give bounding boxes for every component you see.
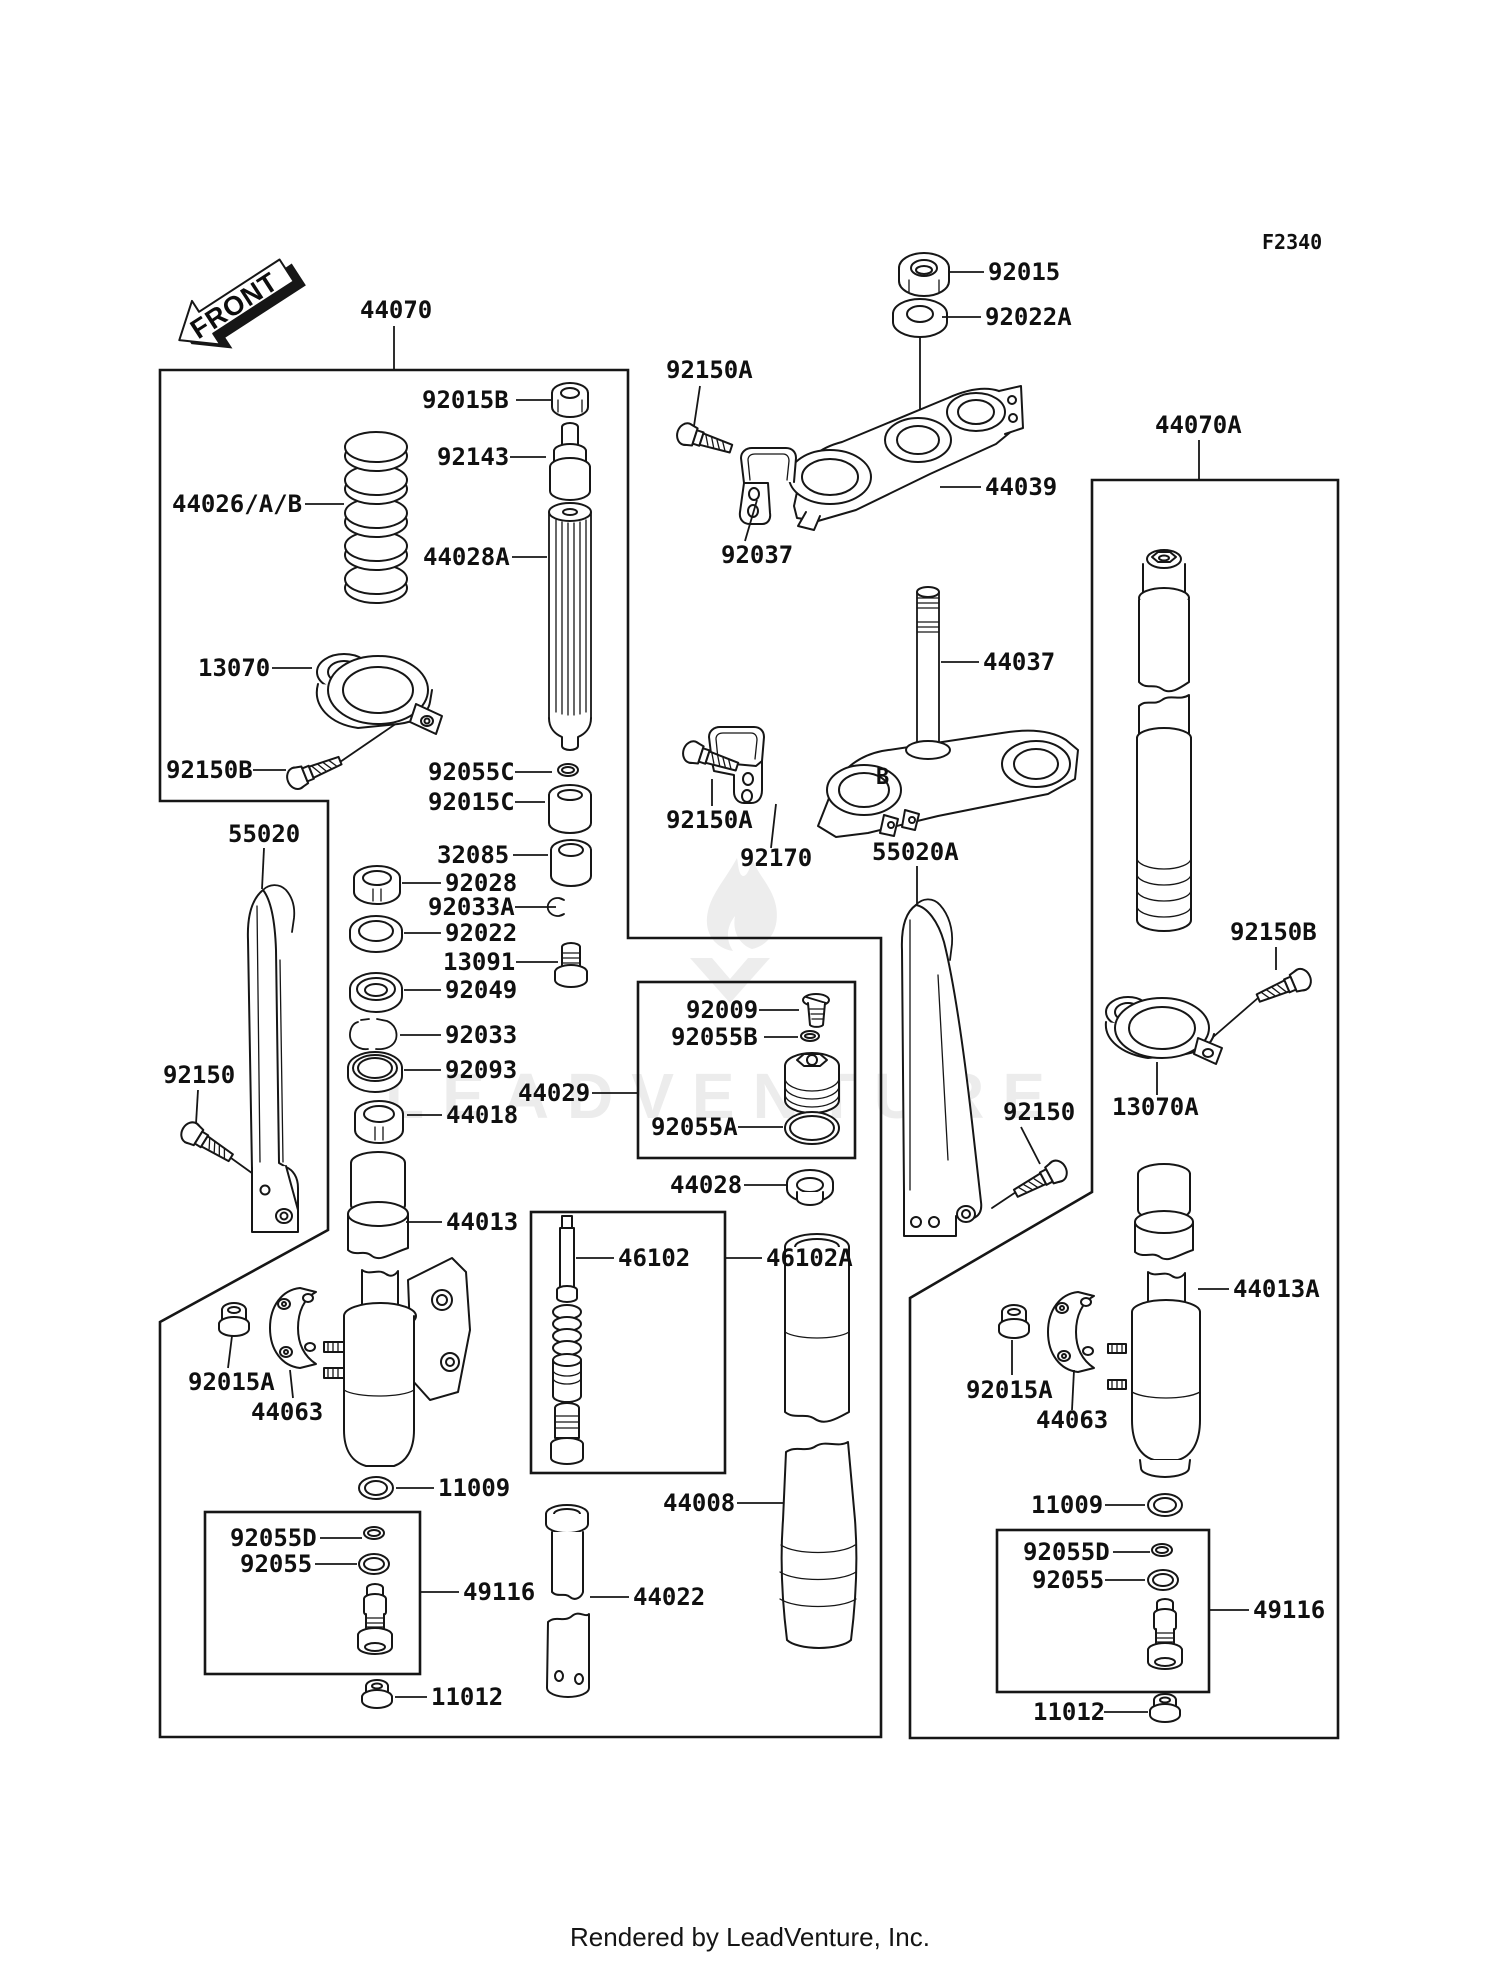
- part-label-92033: 92033: [445, 1021, 517, 1049]
- part-label-92055A: 92055A: [651, 1113, 738, 1141]
- part-label-92049: 92049: [445, 976, 517, 1004]
- parts-diagram-page: LEADVENTURE: [0, 0, 1500, 1962]
- base-valve-49116-right-drawing: [1148, 1599, 1182, 1669]
- part-label-11009-left: 11009: [438, 1474, 510, 1502]
- part-label-44028: 44028: [670, 1171, 742, 1199]
- clamp-holder-92037-drawing: [740, 448, 796, 524]
- dust-seal-92093-drawing: [348, 1052, 402, 1092]
- clamp-bolt-92150B-left-drawing: [284, 750, 344, 791]
- bolt-92150A-top-drawing: [674, 421, 734, 459]
- front-direction-arrow: FRONT: [165, 244, 313, 370]
- part-label-92015: 92015: [988, 258, 1060, 286]
- cap-nut-92015B-drawing: [552, 383, 588, 417]
- fork-clamp-13070-drawing: [317, 654, 442, 734]
- part-label-11012-left: 11012: [431, 1683, 503, 1711]
- part-label-92150A-mid: 92150A: [666, 806, 753, 834]
- part-label-55020: 55020: [228, 820, 300, 848]
- bushing-32085-drawing: [551, 840, 591, 886]
- spring-guide-92143-drawing: [550, 423, 590, 500]
- left-fork-protector-55020-drawing: [248, 885, 298, 1232]
- part-label-44039: 44039: [985, 473, 1057, 501]
- part-label-92093: 92093: [445, 1056, 517, 1084]
- fork-spring-44026-drawing: [345, 432, 407, 603]
- part-label-92150-right: 92150: [1003, 1098, 1075, 1126]
- part-label-13070: 13070: [198, 654, 270, 682]
- o-ring-92055-left-drawing: [359, 1554, 389, 1574]
- oil-seal-92049-drawing: [350, 973, 402, 1012]
- part-label-49116-left: 49116: [463, 1578, 535, 1606]
- parts-diagram-canvas: LEADVENTURE: [0, 0, 1500, 1962]
- upper-triple-clamp-44039-drawing: [789, 386, 1023, 530]
- cylinder-cap-92015C-drawing: [549, 785, 591, 833]
- part-label-11012-right: 11012: [1033, 1698, 1105, 1726]
- leader-line-55020: [262, 848, 264, 889]
- clamp-b-marking: B: [876, 765, 889, 790]
- leader-line-44063-left: [290, 1370, 293, 1398]
- o-ring-92055B-drawing: [801, 1031, 819, 1041]
- part-label-92150A-top: 92150A: [666, 356, 753, 384]
- fork-cap-44029-drawing: [785, 1053, 839, 1113]
- protector-bolt-92150-left-drawing: [177, 1119, 236, 1167]
- damper-rod-46102-drawing: [551, 1216, 583, 1464]
- flange-nut-92015A-left-drawing: [219, 1303, 249, 1336]
- part-label-92015B: 92015B: [422, 386, 509, 414]
- part-label-92055-left: 92055: [240, 1550, 312, 1578]
- part-label-92055B: 92055B: [671, 1023, 758, 1051]
- leader-line-92015A-left: [228, 1336, 232, 1368]
- part-label-44063-right: 44063: [1036, 1406, 1108, 1434]
- clamp-bolt-92150B-right-drawing: [1254, 966, 1314, 1008]
- part-label-44028A: 44028A: [423, 543, 510, 571]
- steering-stem-nut-92015-drawing: [899, 253, 949, 296]
- part-label-55020A: 55020A: [872, 838, 959, 866]
- part-label-92143: 92143: [437, 443, 509, 471]
- ring-92028-drawing: [354, 866, 400, 904]
- outer-fork-tube-44013A-drawing: [1108, 1164, 1200, 1477]
- piston-rod-44028A-drawing: [549, 503, 591, 750]
- inner-tube-44008-drawing: [780, 1234, 856, 1648]
- part-label-92150-left: 92150: [163, 1061, 235, 1089]
- base-valve-49116-left-drawing: [358, 1584, 392, 1654]
- part-label-92037: 92037: [721, 541, 793, 569]
- part-label-92015A-left: 92015A: [188, 1368, 275, 1396]
- leader-line-92150-right: [1021, 1127, 1040, 1164]
- part-label-44063-left: 44063: [251, 1398, 323, 1426]
- cap-nut-11012-left-drawing: [362, 1680, 392, 1708]
- part-label-92015A-right: 92015A: [966, 1376, 1053, 1404]
- protector-bolt-92150-right-drawing: [1011, 1157, 1071, 1203]
- part-label-13070A: 13070A: [1112, 1093, 1199, 1121]
- o-ring-11009-right-drawing: [1148, 1494, 1182, 1516]
- footer-credit: Rendered by LeadVenture, Inc.: [570, 1922, 930, 1952]
- part-label-92022: 92022: [445, 919, 517, 947]
- part-label-92150B-left: 92150B: [166, 756, 253, 784]
- o-ring-92055C-drawing: [558, 764, 578, 776]
- fork-clamp-13070A-drawing: [1106, 997, 1222, 1064]
- part-label-11009-right: 11009: [1031, 1491, 1103, 1519]
- part-label-44029: 44029: [518, 1079, 590, 1107]
- o-ring-92055D-right-drawing: [1152, 1544, 1172, 1556]
- ring-44028-drawing: [787, 1170, 833, 1205]
- steering-stem-44037-drawing: [818, 587, 1078, 837]
- leader-line-92150A-top: [694, 386, 700, 426]
- part-label-13091: 13091: [443, 948, 515, 976]
- part-label-44022: 44022: [633, 1583, 705, 1611]
- drain-screw-13091-drawing: [555, 943, 587, 987]
- part-label-92015C: 92015C: [428, 788, 515, 816]
- leader-line-92170: [771, 804, 776, 848]
- o-ring-92055A-drawing: [785, 1112, 839, 1144]
- part-label-44026AB: 44026/A/B: [172, 490, 302, 518]
- o-ring-11009-left-drawing: [359, 1477, 393, 1499]
- leader-line-44063-right: [1072, 1370, 1074, 1410]
- part-label-92009: 92009: [686, 996, 758, 1024]
- part-label-44008: 44008: [663, 1489, 735, 1517]
- part-label-92170: 92170: [740, 844, 812, 872]
- diagram-code: F2340: [1262, 230, 1322, 254]
- part-label-44070: 44070: [360, 296, 432, 324]
- part-label-46102A: 46102A: [766, 1244, 853, 1272]
- part-label-92055-right: 92055: [1032, 1566, 1104, 1594]
- part-label-44070A: 44070A: [1155, 411, 1242, 439]
- axle-holder-44063-right-drawing: [1048, 1292, 1094, 1372]
- o-ring-92055-right-drawing: [1148, 1570, 1178, 1590]
- part-label-92055C: 92055C: [428, 758, 515, 786]
- part-label-44018: 44018: [446, 1101, 518, 1129]
- washer-92022-drawing: [350, 916, 402, 952]
- part-label-44037: 44037: [983, 648, 1055, 676]
- fork-assembly-44070A-tube-drawing: [1137, 550, 1191, 931]
- flange-nut-92015A-right-drawing: [999, 1305, 1029, 1338]
- cap-nut-11012-right-drawing: [1150, 1694, 1180, 1722]
- guide-bushing-44018-drawing: [355, 1101, 403, 1143]
- part-label-49116-right: 49116: [1253, 1596, 1325, 1624]
- outer-fork-tube-44013-drawing: [324, 1152, 470, 1466]
- spacer-tube-44022-drawing: [546, 1505, 589, 1697]
- part-label-92022A: 92022A: [985, 303, 1072, 331]
- bleed-screw-92009-drawing: [803, 994, 829, 1027]
- retaining-clip-92033-drawing: [350, 1019, 397, 1049]
- part-label-44013A: 44013A: [1233, 1275, 1320, 1303]
- stem-washer-92022A-drawing: [893, 299, 947, 337]
- part-label-92055D-left: 92055D: [230, 1524, 317, 1552]
- part-label-92055D-right: 92055D: [1023, 1538, 1110, 1566]
- part-label-32085: 32085: [437, 841, 509, 869]
- o-ring-92055D-left-drawing: [364, 1527, 384, 1539]
- axle-holder-44063-left-drawing: [270, 1288, 316, 1368]
- part-label-44013: 44013: [446, 1208, 518, 1236]
- leader-line-92150-left: [196, 1090, 198, 1124]
- part-label-46102: 46102: [618, 1244, 690, 1272]
- part-label-92033A: 92033A: [428, 893, 515, 921]
- part-label-92150B-right: 92150B: [1230, 918, 1317, 946]
